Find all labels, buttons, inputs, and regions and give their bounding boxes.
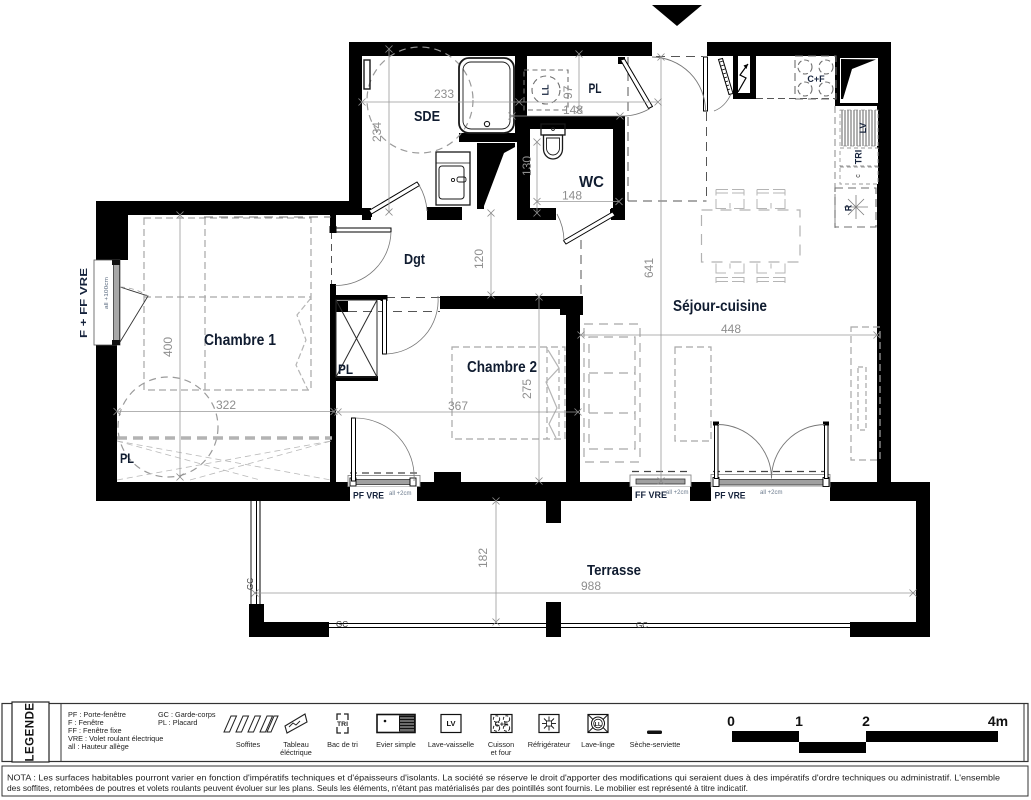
svg-text:120: 120 — [472, 249, 486, 269]
svg-text:PF VRE: PF VRE — [715, 491, 746, 501]
svg-text:F + FF VRE: F + FF VRE — [78, 268, 90, 338]
svg-text:Lave-linge: Lave-linge — [581, 740, 615, 749]
svg-text:Dgt: Dgt — [404, 251, 425, 268]
svg-text:448: 448 — [721, 322, 741, 336]
svg-text:Lave-vaisselle: Lave-vaisselle — [428, 740, 474, 749]
svg-text:et four: et four — [491, 748, 512, 757]
svg-text:C+F: C+F — [807, 74, 825, 84]
svg-text:Sèche-serviette: Sèche-serviette — [630, 740, 681, 749]
svg-text:NOTA : Les surfaces habitables: NOTA : Les surfaces habitables pourront … — [7, 774, 1000, 783]
svg-text:148: 148 — [563, 103, 583, 117]
svg-text:all +100cm: all +100cm — [104, 277, 110, 309]
svg-text:2: 2 — [862, 713, 870, 729]
svg-text:LL: LL — [595, 722, 602, 728]
svg-text:all +2cm: all +2cm — [760, 490, 783, 496]
svg-text:FF VRE: FF VRE — [635, 490, 667, 500]
svg-text:234: 234 — [370, 122, 384, 142]
svg-text:WC: WC — [579, 174, 604, 191]
svg-text:130: 130 — [520, 156, 534, 176]
svg-text:GC: GC — [636, 621, 648, 630]
svg-text:C+F: C+F — [495, 722, 509, 729]
svg-text:182: 182 — [476, 548, 490, 568]
svg-text:Evier simple: Evier simple — [376, 740, 416, 749]
svg-text:des soffites, retombées de pou: des soffites, retombées de poutres et vo… — [7, 784, 748, 793]
svg-text:PL: PL — [338, 361, 353, 377]
svg-text:Séjour-cuisine: Séjour-cuisine — [673, 298, 767, 315]
svg-text:éléctrique: éléctrique — [280, 748, 312, 757]
svg-text:c: c — [855, 174, 862, 178]
svg-text:GC: GC — [246, 578, 255, 590]
svg-text:all +2cm: all +2cm — [666, 490, 689, 496]
svg-text:97: 97 — [561, 85, 575, 99]
svg-text:Chambre 1: Chambre 1 — [204, 332, 276, 349]
svg-text:GC: GC — [336, 620, 348, 629]
svg-text:LL: LL — [540, 84, 550, 95]
svg-text:1: 1 — [795, 713, 803, 729]
svg-text:all +2cm: all +2cm — [389, 491, 412, 497]
svg-text:R: R — [843, 204, 853, 211]
svg-text:367: 367 — [448, 399, 468, 413]
svg-text:Réfrigérateur: Réfrigérateur — [528, 740, 571, 749]
svg-text:275: 275 — [520, 379, 534, 399]
svg-text:PL: PL — [120, 450, 134, 466]
svg-text:SDE: SDE — [414, 108, 440, 125]
svg-text:all : Hauteur allège: all : Hauteur allège — [68, 742, 129, 751]
svg-text:LV: LV — [858, 123, 868, 134]
svg-text:Chambre 2: Chambre 2 — [467, 359, 537, 376]
svg-text:988: 988 — [581, 579, 601, 593]
svg-text:Terrasse: Terrasse — [587, 563, 641, 579]
svg-text:Bac de tri: Bac de tri — [327, 740, 358, 749]
svg-text:400: 400 — [161, 337, 175, 357]
svg-text:TRI: TRI — [337, 721, 348, 728]
svg-text:0: 0 — [727, 713, 735, 729]
svg-text:641: 641 — [642, 258, 656, 278]
svg-text:LEGENDE: LEGENDE — [25, 702, 37, 761]
svg-text:233: 233 — [434, 87, 454, 101]
svg-text:LV: LV — [446, 719, 455, 728]
svg-text:PF VRE: PF VRE — [353, 491, 384, 501]
svg-text:TRI: TRI — [853, 150, 863, 165]
svg-text:4m: 4m — [988, 713, 1008, 729]
svg-text:PL: PL — [589, 80, 602, 96]
svg-text:PL : Placard: PL : Placard — [158, 718, 197, 727]
svg-text:322: 322 — [216, 398, 236, 412]
svg-text:Soffites: Soffites — [236, 740, 261, 749]
